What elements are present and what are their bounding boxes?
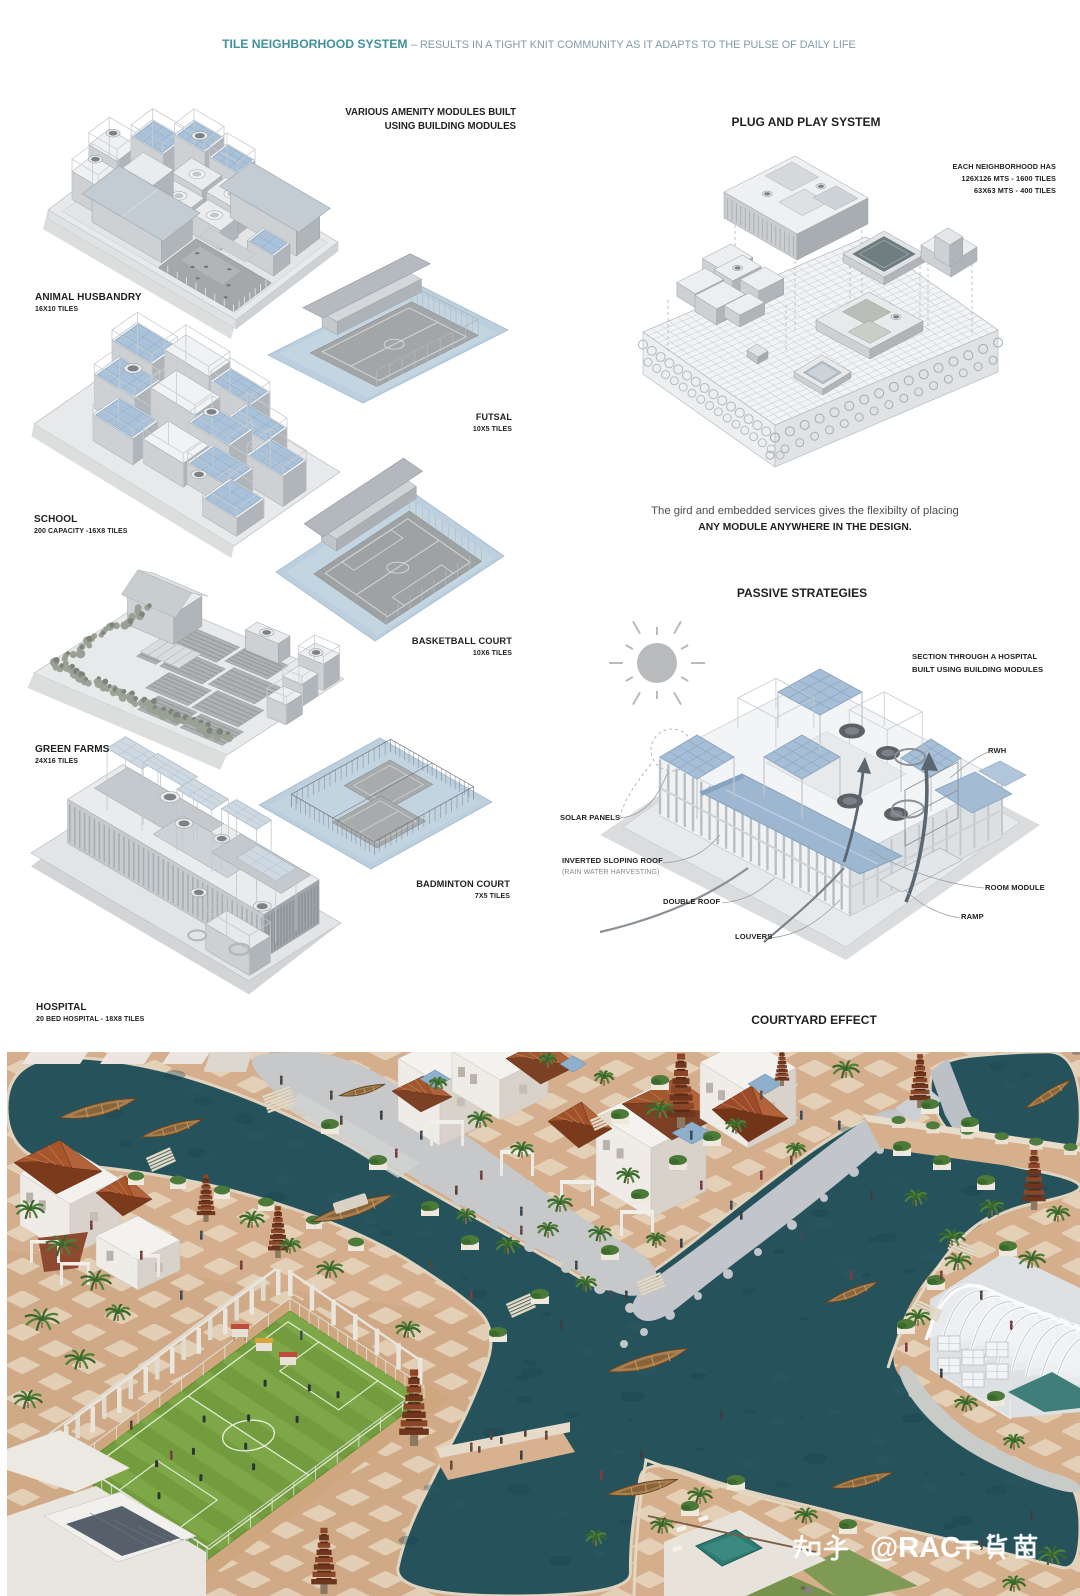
svg-text:@RAC: @RAC [870, 1532, 961, 1564]
